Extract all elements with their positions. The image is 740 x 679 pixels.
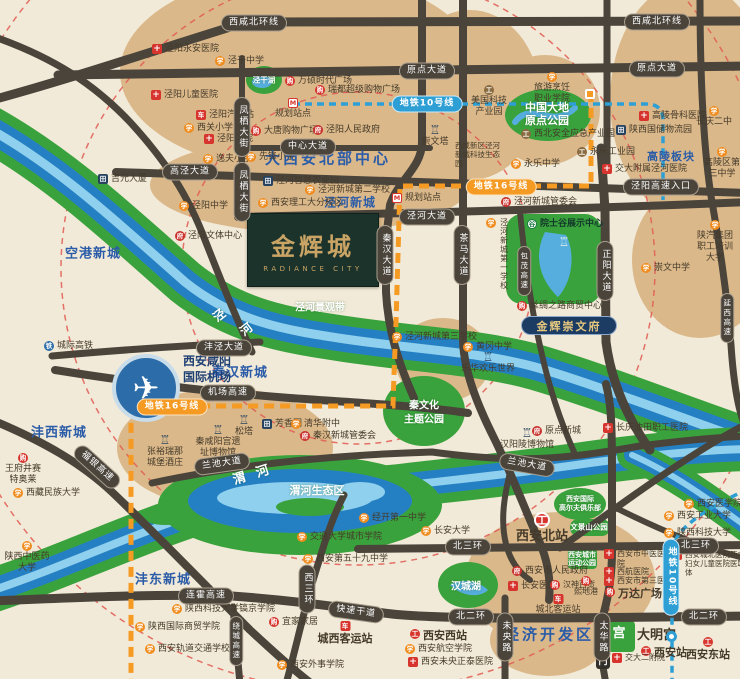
poi: 工西安北站 <box>516 512 568 545</box>
poi: 学陕西国际商贸学院 <box>135 622 220 633</box>
park-label: 泾河景观带 <box>295 299 345 314</box>
poi: 购宜家家居 <box>269 617 318 628</box>
school-icon: 学 <box>277 660 287 670</box>
road-name-pill: 秦汉大道 <box>377 225 394 285</box>
poi-label: 大唐购物广场 <box>264 126 318 137</box>
school-icon: 学 <box>303 554 313 564</box>
park-label: 渭河生态区 <box>290 482 345 498</box>
poi-label: 西安西站 <box>423 629 467 642</box>
railway-station-icon: 工 <box>534 512 550 528</box>
project-block-radiance-city: 金辉城 RADIANCE CITY <box>247 213 379 287</box>
school-icon: 学 <box>547 72 557 82</box>
poi-label: 泾阳人民政府 <box>326 125 380 136</box>
poi-label: 泾阳儿童医院 <box>164 90 218 101</box>
poi-label: 交大二附院 <box>625 653 665 663</box>
poi-label: 王府井赛特奥莱 <box>2 464 44 486</box>
poi-label: 西安航空学院 <box>418 644 472 655</box>
poi-label: 西安北站 <box>516 529 568 545</box>
poi-label: 崇文中学 <box>654 263 690 274</box>
poi: 府泾阳人民政府 <box>313 125 380 136</box>
pagoda-icon: ♖ <box>212 424 224 436</box>
hospital-icon: + <box>204 134 214 144</box>
park-label: 原点公园 <box>525 112 569 128</box>
poi: 车城北客运站 <box>535 594 580 616</box>
building-icon: 田 <box>98 174 108 184</box>
poi-label: 乐华欢乐世界 <box>459 364 517 375</box>
shopping-icon: 购 <box>605 587 615 597</box>
poi-label: 西安外事学院 <box>290 660 344 671</box>
metro10-station-icon <box>666 631 677 642</box>
government-icon: 府 <box>512 566 522 576</box>
poi: 工美国科技产业园 <box>469 85 509 118</box>
bus-station-icon: 车 <box>340 621 350 631</box>
poi-label: 陕汽集团职工培训大学 <box>694 231 736 263</box>
planned-metro-station-icon: M <box>392 193 402 203</box>
metro-line-pill-m16: 地铁16号线 <box>137 399 208 416</box>
road-name-pill: 凤栖大街 <box>234 162 251 222</box>
poi: 学西安第五十九中学 <box>303 554 388 565</box>
poi-label: 陕西国储物流园 <box>629 125 692 136</box>
poi-label: 规划站点 <box>405 193 441 204</box>
park-label: 文景山公园 <box>570 522 608 533</box>
school-icon: 学 <box>179 201 189 211</box>
district-label: 空港新城 <box>65 243 121 262</box>
poi: 府秦汉新城管委会 <box>300 431 376 442</box>
school-icon: 学 <box>215 56 225 66</box>
poi-label: 长安大学 <box>434 526 470 537</box>
poi: ♖乐华欢乐世界 <box>459 351 517 375</box>
poi-label: 西安未央正泰医院 <box>421 657 493 668</box>
poi: +交大二附院 <box>612 653 665 663</box>
poi: 学永乐中学 <box>511 159 560 170</box>
poi: +西安未央正泰医院 <box>408 657 493 668</box>
poi: +西安市中医医院 <box>604 549 665 568</box>
shopping-icon: 购 <box>315 85 325 95</box>
poi-label: 西安轨道交通学校 <box>158 644 230 655</box>
school-icon: 学 <box>145 644 155 654</box>
poi: 学崇文中学 <box>641 263 690 274</box>
hospital-icon: + <box>508 581 518 591</box>
school-icon: 学 <box>664 511 674 521</box>
poi: 谷院士谷展示中心 <box>527 219 603 230</box>
poi: 学泾河新城第二学校 <box>305 185 390 196</box>
poi-label: 西咸新区泾河新城科技生态园 <box>455 141 505 168</box>
poi-label: 陕西国际商贸学院 <box>148 622 220 633</box>
poi-label: 西安东站 <box>686 648 730 661</box>
park-label: 秦文化 <box>409 397 439 412</box>
government-icon: 府 <box>501 197 511 207</box>
palace-icon: 宫 <box>612 626 626 640</box>
road-name-pill: 高泾大道 <box>162 164 218 181</box>
industry-icon: 工 <box>521 129 531 139</box>
school-icon: 学 <box>184 123 194 133</box>
poi-label: 美国科技产业园 <box>469 96 509 118</box>
poi: 学泾阳中学 <box>179 201 228 212</box>
poi: +交大附属泾河医院 <box>602 164 687 175</box>
school-icon: 学 <box>258 198 268 208</box>
poi-label: 泾河新城第一学校 <box>499 218 509 290</box>
road-name-pill: 原点大道 <box>399 63 455 80</box>
poi-label: 泾河新城管委会 <box>514 197 577 208</box>
poi-label: 泾干中学 <box>228 56 264 67</box>
poi: 工永乐工业园 <box>577 147 635 158</box>
school-icon: 学 <box>664 528 674 538</box>
poi: 学泾干中学 <box>215 56 264 67</box>
building-icon: 田 <box>616 125 626 135</box>
poi: 学西安外事学院 <box>277 660 344 671</box>
school-icon: 学 <box>511 159 521 169</box>
poi-label: 崇文塔 <box>421 137 448 148</box>
railway-station-icon: 工 <box>703 637 713 647</box>
hospital-icon: + <box>408 657 418 667</box>
school-icon: 学 <box>135 622 145 632</box>
poi-label: 城西客运站 <box>318 632 373 645</box>
hospital-icon: + <box>152 44 162 54</box>
poi-label: 院士谷展示中心 <box>540 219 603 230</box>
school-icon: 学 <box>172 604 182 614</box>
poi-label: 泾阳中学 <box>192 201 228 212</box>
shopping-icon: 购 <box>517 301 527 311</box>
poi: ♖张裕瑞那城堡酒庄 <box>144 434 186 469</box>
road-name-pill: 北二环 <box>448 609 494 626</box>
poi-label: 万达广场 <box>618 587 662 600</box>
poi: 学泾河新城第一学校 <box>486 218 509 290</box>
district-label: 沣东新城 <box>135 569 191 588</box>
pagoda-icon: ♖ <box>482 351 494 363</box>
district-label: 沣西新城 <box>31 422 87 441</box>
poi-label: 宜家家居 <box>282 617 318 628</box>
building-icon: 田 <box>263 176 273 186</box>
poi-label: 秦汉新城管委会 <box>313 431 376 442</box>
road-name-pill: 泾河大道 <box>399 209 455 226</box>
poi: 学西关小学 <box>184 123 233 134</box>
school-icon: 学 <box>405 644 415 654</box>
park-label: 主题公园 <box>404 411 444 426</box>
road-name-pill: 机场高速 <box>200 385 256 402</box>
school-icon: 学 <box>641 263 651 273</box>
poi-label: 松塔 <box>235 427 253 438</box>
school-icon: 学 <box>13 488 23 498</box>
poi <box>585 89 595 99</box>
poi-label: 泾阳文体中心 <box>188 231 242 242</box>
poi: 购王府井赛特奥莱 <box>2 453 44 486</box>
shopping-icon: 购 <box>581 576 591 586</box>
intercity-rail-icon: 铁 <box>44 341 54 351</box>
poi-label: 张裕瑞那城堡酒庄 <box>144 447 186 469</box>
poi-label: 长庆二中 <box>696 117 732 128</box>
poi-label: 吉元大厦 <box>111 174 147 185</box>
road-name-pill: 北三环 <box>673 538 719 555</box>
poi: 学陕西科技大学镐京学院 <box>172 604 275 615</box>
poi: 学西藏民族大学 <box>13 488 80 499</box>
poi-label: 陕西科技大学镐京学院 <box>185 604 275 615</box>
poi: 学交通大学城市学院 <box>297 532 382 543</box>
poi: 购万达广场 <box>605 587 662 600</box>
poi: 购瑞都超级购物广场 <box>315 85 400 96</box>
bus-station-icon: 车 <box>196 110 206 120</box>
poi-label: 永乐工业园 <box>590 147 635 158</box>
school-icon: 学 <box>22 541 32 551</box>
poi-label: 原点新城 <box>545 426 581 437</box>
poi-label: 西安理工大分校区 <box>271 198 343 209</box>
road-name-pill: 泾阳高速入口 <box>623 179 699 196</box>
shopping-icon: 购 <box>251 126 261 136</box>
poi-label: 旅游烹饪职业学院 <box>531 83 573 105</box>
school-icon: 学 <box>305 185 315 195</box>
poi-label: 丝绸之路商贸中心 <box>530 301 602 312</box>
poi: 西咸新区泾河新城科技生态园 <box>455 141 505 168</box>
shopping-icon: 购 <box>550 580 560 590</box>
government-icon: 府 <box>313 125 323 135</box>
poi-label: 泾河新城第二学校 <box>318 185 390 196</box>
poi: 府原点新城 <box>532 426 581 437</box>
poi-label: 高陵区第三中学 <box>704 158 740 180</box>
poi <box>666 631 677 642</box>
pagoda-icon: ♖ <box>429 124 441 136</box>
poi: 学陕汽集团职工培训大学 <box>694 220 736 263</box>
industry-icon: 工 <box>577 147 587 157</box>
poi: 学西安轨道交通学校 <box>145 644 230 655</box>
metro16-station-icon <box>585 89 595 99</box>
poi: M规划站点 <box>392 193 441 204</box>
radiance-city-location-map: 金辉城 RADIANCE CITY 金辉崇文府 西咸北环线西咸北环线原点大道原点… <box>0 0 740 679</box>
shopping-icon: 购 <box>18 453 28 463</box>
school-icon: 学 <box>710 220 720 230</box>
road-name-pill: 北二环 <box>681 609 727 626</box>
poi-label: 交大附属泾河医院 <box>615 164 687 175</box>
poi-label: 西安工业大学 <box>677 511 731 522</box>
poi: 学长庆二中 <box>696 106 732 128</box>
road-name-pill: 北三环 <box>445 539 491 556</box>
park-label: 汉城湖 <box>451 578 481 593</box>
hospital-icon: + <box>639 111 649 121</box>
road-name-pill: 凤栖大街 <box>234 97 251 157</box>
poi-label: 西安第五十九中学 <box>316 554 388 565</box>
poi-label: 永乐中学 <box>524 159 560 170</box>
poi: 学旅游烹饪职业学院 <box>531 72 573 105</box>
poi-label: 西安市中医医院 <box>617 549 665 568</box>
school-icon: 学 <box>486 218 496 228</box>
road-name-pill: 沣泾大道 <box>196 340 252 357</box>
poi: 工西安东站 <box>686 637 730 661</box>
poi: 学陕西中医药大学 <box>1 541 53 574</box>
road-name-pill: 正阳大道 <box>597 241 614 301</box>
poi-label: 城际高铁 <box>57 341 93 352</box>
road-name-pill: 包茂高速 <box>517 246 531 296</box>
metro-line-pill-m16: 地铁16号线 <box>466 179 537 196</box>
road-name-pill: 中心大道 <box>280 139 336 156</box>
poi: 学经开第一中学 <box>359 513 426 524</box>
road-name-pill: 太华路 <box>594 613 611 662</box>
road-name-pill: 未央路 <box>497 613 514 662</box>
poi-label: 西关小学 <box>197 123 233 134</box>
exhibition-center-icon: 谷 <box>527 219 537 229</box>
government-icon: 府 <box>532 426 542 436</box>
poi: 学西安医学院 <box>684 499 740 510</box>
hospital-icon: + <box>604 549 614 559</box>
poi-label: 西安医学院 <box>697 499 740 510</box>
poi: 工西北安全应急产业园 <box>521 129 615 140</box>
poi: 学长安大学 <box>421 526 470 537</box>
poi: +泾阳儿童医院 <box>151 90 218 101</box>
road-name-pill: 延西高速 <box>720 293 734 343</box>
road-name-pill: 西咸北环线 <box>624 14 690 31</box>
building-icon: 田 <box>262 419 272 429</box>
school-icon: 学 <box>421 526 431 536</box>
pagoda-icon: ♖ <box>159 434 171 446</box>
poi: 工西安西站 <box>410 629 467 642</box>
industry-icon: 工 <box>484 85 494 95</box>
poi: 车城西客运站 <box>318 621 373 645</box>
planned-metro-station-icon: M <box>288 98 298 108</box>
poi: 宫 <box>612 626 626 640</box>
poi: ♖松塔 <box>235 414 253 438</box>
poi: +泾阳永安医院 <box>152 44 219 55</box>
government-icon: 府 <box>175 231 185 241</box>
hospital-icon: + <box>151 90 161 100</box>
poi: 学清华附中 <box>291 419 340 430</box>
poi-label: 西安咸阳国际机场 <box>183 354 237 385</box>
government-icon: 府 <box>300 431 310 441</box>
school-icon: 学 <box>203 154 213 164</box>
poi-label: 汉阳陵博物馆 <box>496 440 558 451</box>
metro-line-pill-m10: 地铁10号线 <box>392 96 463 113</box>
road-name-pill: 西咸北环线 <box>221 15 287 32</box>
school-icon: 学 <box>709 106 719 116</box>
school-icon: 学 <box>717 147 727 157</box>
poi: 学泾河新城第三学校 <box>392 332 477 343</box>
project-name-en: RADIANCE CITY <box>263 265 362 273</box>
school-icon: 学 <box>359 513 369 523</box>
poi-label: 陕西中医药大学 <box>1 552 53 574</box>
poi: ♖ <box>558 236 570 248</box>
poi-label: 西北安全应急产业园 <box>534 129 615 140</box>
hospital-icon: + <box>612 653 622 663</box>
shopping-icon: 购 <box>285 76 295 86</box>
poi-label: 规划站点 <box>275 109 311 120</box>
road-name-pill: 茶马大道 <box>454 225 471 285</box>
poi-label: 西藏民族大学 <box>26 488 80 499</box>
poi: 学高陵区第三中学 <box>704 147 740 180</box>
school-icon: 学 <box>392 332 402 342</box>
poi-label: 泾阳永安医院 <box>165 44 219 55</box>
school-icon: 学 <box>684 499 694 509</box>
poi: 田陕西国储物流园 <box>616 125 692 136</box>
poi-label: 清华附中 <box>304 419 340 430</box>
school-icon: 学 <box>297 532 307 542</box>
poi: 购丝绸之路商贸中心 <box>517 301 602 312</box>
metro-line-pill-m10: 地铁10号线 <box>663 539 680 616</box>
road-name-pill: 连霍高速 <box>178 588 234 605</box>
poi: 府泾阳文体中心 <box>175 231 242 242</box>
road-name-pill: 西三环 <box>299 565 316 614</box>
poi-label: 城北客运站 <box>535 605 580 616</box>
poi-label: 泾河新城第三学校 <box>405 332 477 343</box>
poi: 学西安理工大分校区 <box>258 198 343 209</box>
district-label: 经济开发区 <box>504 624 594 645</box>
pagoda-icon: ♖ <box>238 414 250 426</box>
poi: 学西安工业大学 <box>664 511 731 522</box>
poi-label: 长庆油田职工医院 <box>616 423 688 434</box>
poi: 铁城际高铁 <box>44 341 93 352</box>
railway-station-icon: 工 <box>410 629 420 639</box>
park-label: 泾干湖 <box>253 75 276 86</box>
hospital-icon: + <box>604 576 614 586</box>
poi-label: 瑞都超级购物广场 <box>328 85 400 96</box>
pagoda-icon: ♖ <box>558 236 570 248</box>
poi-label: 交通大学城市学院 <box>310 532 382 543</box>
district-label: 高陵板块 <box>647 148 695 164</box>
hospital-icon: + <box>602 164 612 174</box>
road-name-pill: 原点大道 <box>629 61 685 78</box>
school-icon: 学 <box>291 419 301 429</box>
poi: ♖崇文塔 <box>421 124 448 148</box>
subproject-pill-chongwenfu: 金辉崇文府 <box>521 316 617 335</box>
poi: 田吉元大厦 <box>98 174 147 185</box>
shopping-icon: 购 <box>269 617 279 627</box>
poi: 府泾河新城管委会 <box>501 197 577 208</box>
road-name-pill: 绕城高速 <box>229 616 243 666</box>
wetland <box>145 511 185 525</box>
project-name-cn: 金辉城 <box>271 227 355 262</box>
hospital-icon: + <box>603 423 613 433</box>
poi: 学西安航空学院 <box>405 644 472 655</box>
poi: +长庆油田职工医院 <box>603 423 688 434</box>
poi: M规划站点 <box>275 98 311 120</box>
poi: 购大唐购物广场 <box>251 126 318 137</box>
poi-label: 经开第一中学 <box>372 513 426 524</box>
bus-station-icon: 车 <box>553 594 563 604</box>
